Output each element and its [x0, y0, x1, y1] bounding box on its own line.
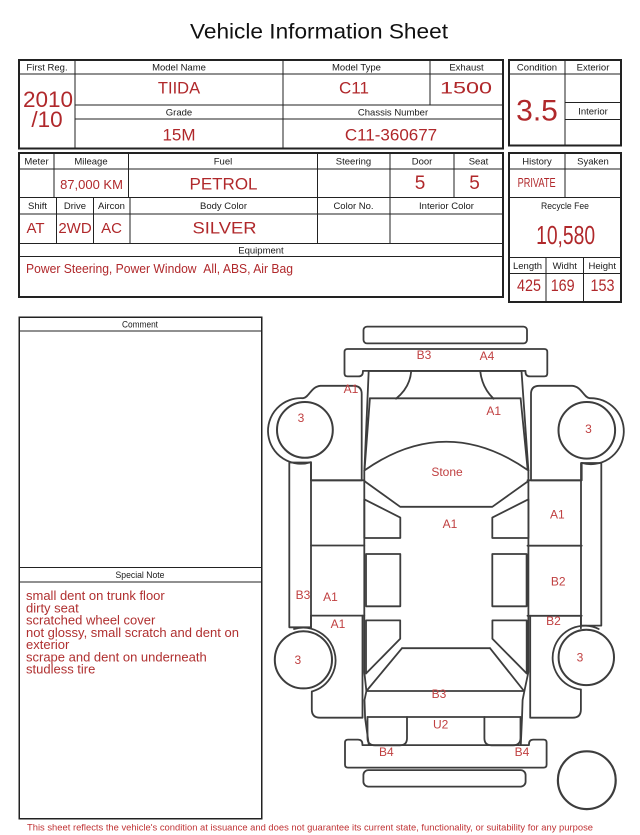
svg-text:Length: Length — [513, 261, 542, 272]
svg-text:Seat: Seat — [469, 156, 489, 167]
svg-text:A4: A4 — [480, 349, 495, 363]
svg-text:TIIDA: TIIDA — [158, 80, 200, 98]
svg-text:studless tire: studless tire — [26, 662, 95, 677]
svg-text:Color No.: Color No. — [333, 201, 373, 212]
svg-text:Steering: Steering — [336, 156, 371, 167]
svg-text:Fuel: Fuel — [214, 156, 232, 167]
svg-text:Body Color: Body Color — [200, 201, 247, 212]
svg-text:A1: A1 — [443, 517, 458, 531]
svg-text:B3: B3 — [417, 348, 432, 362]
svg-text:Syaken: Syaken — [577, 156, 609, 167]
svg-text:169: 169 — [551, 276, 575, 295]
svg-text:Vehicle Information Sheet: Vehicle Information Sheet — [190, 21, 448, 44]
svg-text:AC: AC — [101, 220, 122, 237]
svg-text:C11: C11 — [339, 79, 369, 98]
svg-text:AT: AT — [26, 220, 44, 237]
svg-text:A1: A1 — [331, 617, 346, 631]
svg-text:Interior Color: Interior Color — [419, 201, 474, 212]
svg-text:Height: Height — [589, 261, 617, 272]
svg-text:1500: 1500 — [440, 79, 492, 98]
svg-text:A1: A1 — [323, 590, 338, 604]
svg-text:History: History — [522, 156, 552, 167]
svg-text:3: 3 — [294, 653, 301, 667]
svg-text:U2: U2 — [433, 718, 449, 732]
svg-text:Condition: Condition — [517, 63, 557, 74]
svg-text:Door: Door — [412, 156, 433, 167]
svg-text:Aircon: Aircon — [98, 201, 125, 212]
svg-text:Model Name: Model Name — [152, 63, 206, 74]
svg-text:Drive: Drive — [64, 201, 86, 212]
svg-text:87,000 KM: 87,000 KM — [60, 177, 123, 192]
svg-text:B3: B3 — [296, 588, 311, 602]
svg-text:Recycle Fee: Recycle Fee — [541, 201, 589, 212]
svg-text:PRIVATE: PRIVATE — [518, 176, 556, 190]
svg-text:3: 3 — [585, 422, 592, 436]
svg-text:A1: A1 — [344, 382, 359, 396]
svg-text:Interior: Interior — [578, 107, 608, 118]
svg-text:5: 5 — [469, 173, 480, 194]
svg-text:SILVER: SILVER — [193, 219, 257, 238]
svg-text:10,580: 10,580 — [536, 222, 595, 250]
svg-text:3: 3 — [577, 651, 584, 665]
svg-text:Grade: Grade — [166, 108, 192, 119]
svg-text:Stone: Stone — [431, 465, 463, 479]
svg-text:Mileage: Mileage — [74, 156, 107, 167]
svg-text:2WD: 2WD — [58, 220, 92, 237]
svg-text:/10: /10 — [31, 107, 62, 132]
svg-text:C11-360677: C11-360677 — [345, 126, 437, 145]
svg-text:Exterior: Exterior — [577, 63, 610, 74]
svg-text:This sheet reflects the vehicl: This sheet reflects the vehicle's condit… — [27, 823, 593, 833]
svg-text:15M: 15M — [162, 126, 195, 145]
svg-text:PETROL: PETROL — [189, 175, 257, 194]
svg-text:5: 5 — [415, 173, 426, 194]
svg-text:Shift: Shift — [28, 201, 47, 212]
svg-text:B3: B3 — [432, 687, 447, 701]
svg-text:Special Note: Special Note — [116, 570, 165, 581]
svg-text:Exhaust: Exhaust — [449, 63, 484, 74]
svg-text:Equipment: Equipment — [238, 245, 284, 256]
svg-text:A1: A1 — [486, 404, 501, 418]
svg-text:3: 3 — [298, 411, 305, 425]
svg-text:B4: B4 — [379, 745, 394, 759]
svg-text:425: 425 — [517, 276, 541, 295]
svg-text:3.5: 3.5 — [516, 95, 558, 128]
svg-text:Meter: Meter — [24, 156, 48, 167]
svg-text:Comment: Comment — [122, 319, 158, 330]
svg-text:Widht: Widht — [553, 261, 578, 272]
svg-text:B4: B4 — [515, 745, 530, 759]
svg-text:B2: B2 — [546, 614, 561, 628]
svg-text:Power Steering, Power Window: Power Steering, Power Window All, ABS, A… — [26, 261, 293, 276]
svg-text:Chassis Number: Chassis Number — [358, 108, 428, 119]
svg-text:Model Type: Model Type — [332, 63, 381, 74]
svg-text:First Reg.: First Reg. — [26, 63, 67, 74]
svg-text:B2: B2 — [551, 575, 566, 589]
svg-text:A1: A1 — [550, 508, 565, 522]
svg-text:153: 153 — [591, 276, 615, 295]
